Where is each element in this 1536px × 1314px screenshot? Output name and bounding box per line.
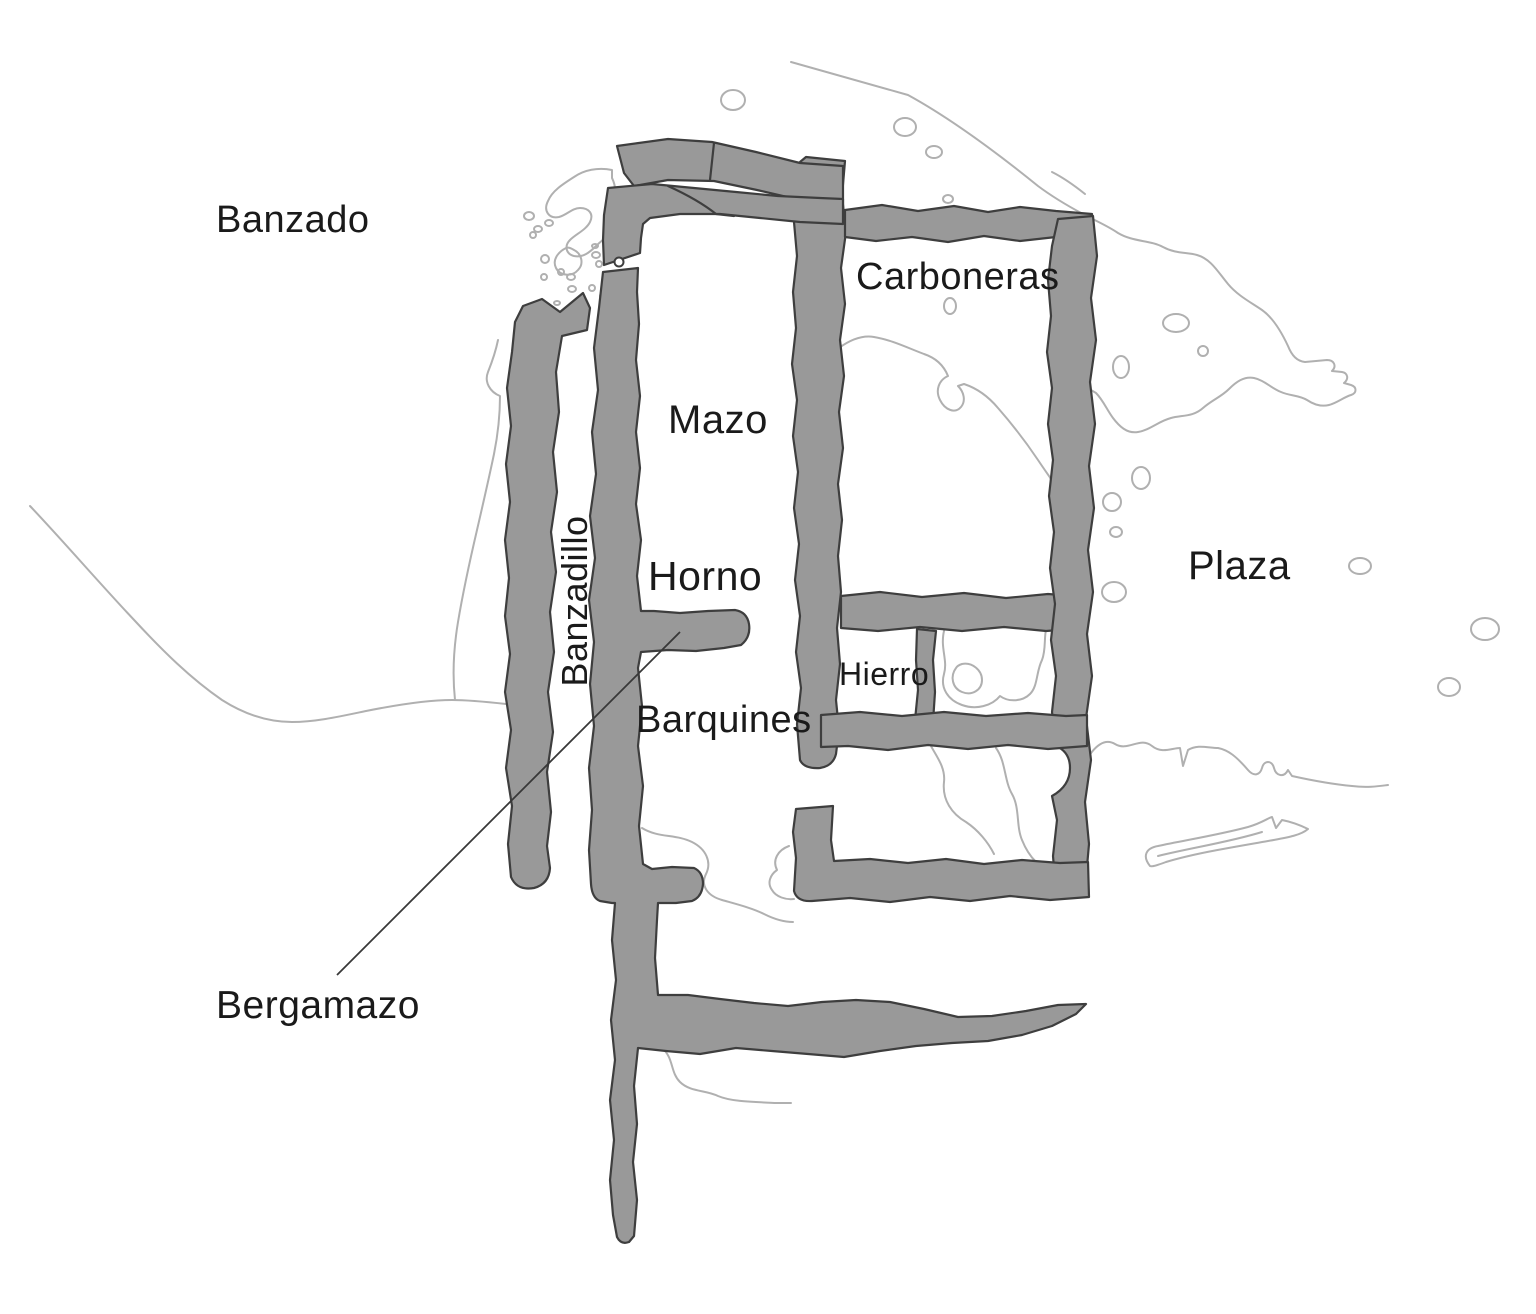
wall-southeast-l <box>793 806 1089 902</box>
label-barquines: Barquines <box>636 701 812 739</box>
plan-drawing <box>0 0 1536 1314</box>
hillside-contour-branch <box>1052 172 1085 194</box>
label-banzadillo: Banzadillo <box>557 515 593 686</box>
wall-east <box>1047 216 1097 897</box>
wall-south-of-rooms <box>821 712 1087 750</box>
site-plan-canvas: Banzado Carboneras Mazo Banzadillo Horno… <box>0 0 1536 1314</box>
field-pebbles <box>1113 314 1208 378</box>
wall-shapes <box>505 139 1097 1243</box>
label-bergamazo: Bergamazo <box>216 986 420 1025</box>
storeroom-floor-blob <box>953 664 982 694</box>
southwest-corner-squiggle <box>770 846 794 899</box>
wall-carboneras-south <box>841 592 1087 631</box>
southeast-room-contour-a <box>925 734 994 854</box>
southeast-room-contour-b <box>996 748 1036 862</box>
west-landscape-branch <box>454 340 500 700</box>
label-hierro: Hierro <box>839 658 929 690</box>
carboneras-floor-contour <box>839 337 1057 488</box>
label-mazo: Mazo <box>668 400 768 440</box>
sluice-post-hole-icon <box>615 258 624 267</box>
label-horno: Horno <box>648 556 762 597</box>
label-plaza: Plaza <box>1188 546 1291 586</box>
label-banzado: Banzado <box>216 201 370 239</box>
label-carboneras: Carboneras <box>856 258 1060 296</box>
west-landscape-contour <box>30 506 506 722</box>
plaza-pebbles <box>1102 467 1499 696</box>
east-long-contour <box>1085 742 1388 787</box>
wall-central <box>792 157 846 768</box>
storeroom-floor-contour <box>943 630 1046 707</box>
below-spur-contour <box>662 1048 791 1103</box>
